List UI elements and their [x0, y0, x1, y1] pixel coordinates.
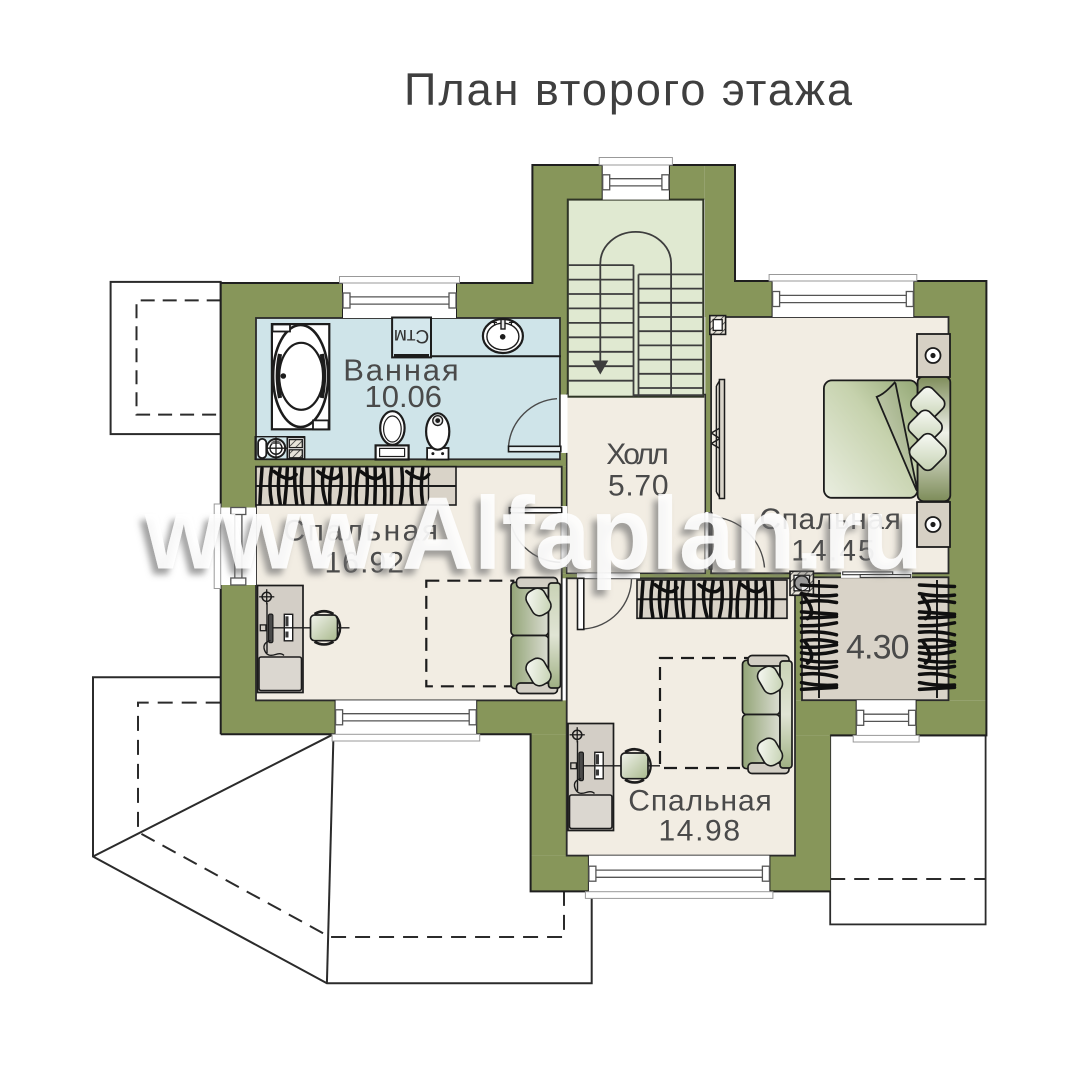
svg-text:4.30: 4.30	[846, 629, 911, 667]
svg-text:www.Alfaplan.ru: www.Alfaplan.ru	[144, 476, 923, 591]
svg-text:План второго этажа: План второго этажа	[404, 64, 853, 115]
svg-text:14.98: 14.98	[659, 815, 742, 848]
svg-text:Холл: Холл	[606, 438, 670, 471]
svg-text:Стм: Стм	[394, 325, 430, 346]
svg-text:Спальная: Спальная	[628, 785, 773, 818]
svg-text:10.06: 10.06	[365, 379, 444, 414]
